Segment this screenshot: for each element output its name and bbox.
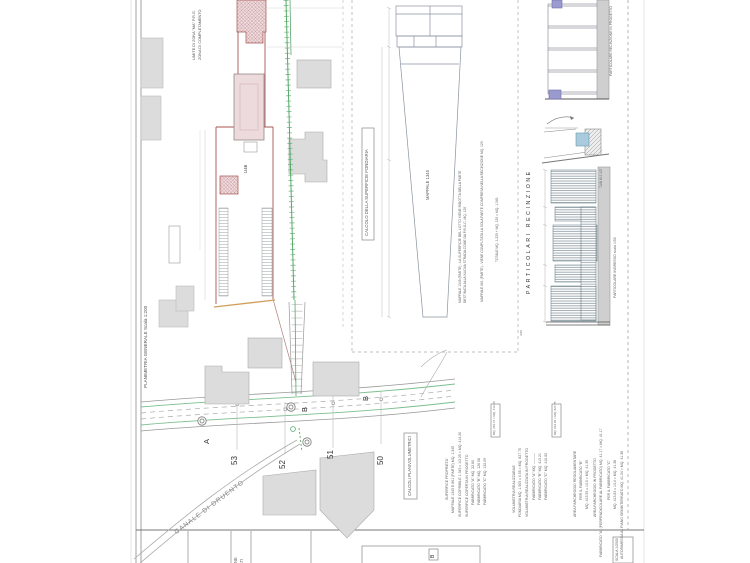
calc-col2-line: FABBRICATO "A" MQ. ———: [533, 453, 537, 500]
site-plan-upper: [200, 0, 343, 382]
surface-calc-note-4: TOTALE MQ. 1.225 + MQ. 120 = MQ. 1.345: [496, 198, 499, 262]
calc-col1-line: MAPPALE 1345 E 861 (PARTE) MQ. 1.345: [452, 446, 456, 513]
calc-col1-line: SUPERFICE COPRIBILE 1.345 x 1/3.25 = MQ.…: [459, 432, 463, 517]
zone-limit-label-1: LIMITE DI ZONA "MA" P.R.G.: [193, 10, 197, 60]
entrance-dim-note: 4.00: [520, 330, 523, 336]
footer-location-label-2: FABBRICATI: [240, 559, 244, 563]
calc-block-title: CALCOLI PLANIVOLUMETRICI: [408, 436, 412, 496]
surface-calc-note-2: DESTINATA ALLA NUOVA STRADA COME DA P.R.…: [464, 207, 467, 303]
calc-col2-line: FABBRICATO "B" MQ. 413.21: [539, 453, 543, 500]
calc-col3-line: MQ. 413.55 x 1/10 = MQ. 41.35: [586, 460, 590, 509]
parcel-wedge: [421, 350, 447, 397]
calc-col1-line: SUPERFICE PROPRIETA': [446, 458, 450, 500]
calc-col1-line: SUPERFICE COPERTA IN PROGETTO: [466, 455, 470, 517]
neighbour-buildings-left: [141, 38, 194, 327]
surface-calc-note-1: MAPPALE 1345 (PARTE) - LA SUPERFICIE DEL…: [459, 171, 462, 303]
calc-col3-line: FABBRICATO "A" (PERPENDICOLARE AL FABBRI…: [600, 428, 604, 557]
calc-col3-line: PER IL FABBRICATO "B": [580, 460, 584, 500]
calc-col2-line: FONDIARIA MQ. 1.505 x 0.55 = MQ. 827.75: [519, 448, 523, 517]
calc-col1-line: FABBRICATO "C" MQ. 132.09: [484, 458, 488, 505]
parcel-51-label: 51: [327, 450, 335, 459]
point-b2-label: B: [362, 396, 370, 401]
neighbour-buildings-road: [205, 338, 374, 538]
parcel-52-label: 52: [279, 460, 287, 469]
calc-box1-total: MQ. 281.47 < MQ. 414.20: [493, 401, 496, 435]
pipe-note: TUBI Ø 2 1/2": [600, 168, 603, 188]
footer-scale-box-label: SCALA 1/2500: [616, 538, 620, 561]
entrance-label: PARTICOLARE INGRESSO scala 1/50: [614, 237, 618, 298]
surface-calc-note-3: MAPPALE 861 (PARTE) - VIENE COMPUTATA LA…: [481, 141, 484, 302]
parcel-53-label: 53: [231, 456, 239, 465]
calc-col3-line: MQ. 413.83 x 1/10 = MQ. 41.38: [614, 460, 618, 509]
drawing-sheet: PLANIMETRIA GENERALE Scala 1:200 LIMITE …: [0, 0, 750, 563]
calc-col2-line: VOLUMETRIA REALIZZATA IN PROGETTO: [526, 448, 530, 517]
entrance-elevation: [543, 167, 610, 325]
sheet-strip-label: PLANIMETRIA GENERALE Scala 1:200: [144, 306, 149, 388]
surface-calc-figure: [362, 6, 462, 318]
calc-col3-line: AREA PARCHEGGIO IN PROGETTO: [594, 458, 598, 517]
parcel-50-label: 50: [377, 456, 385, 465]
calc-b-mark: B: [431, 555, 436, 558]
calc-col3-line: PER IL FABBRICATO "C": [608, 460, 612, 500]
footer-boxes: [188, 531, 633, 563]
fence-top-elevation: [545, 0, 609, 99]
calc-col2-line: VOLUMETRIA REALIZZABILE: [513, 465, 517, 513]
fence-top-label: PARTICOLARE RECINZIONE IN PROGETTO: [610, 6, 613, 76]
footer-location-label-1: UBICAZIONE: [234, 557, 238, 563]
calc-col3-line: AREA PARCHEGGIO REGOLAMENTARE: [574, 451, 578, 517]
point-a-label: A: [203, 439, 211, 444]
gate-plan-detail: [542, 116, 609, 163]
calc-col1-line: FABBRICATO "A" MQ. 22.80: [472, 460, 476, 505]
calc-col2-line: FABBRICATO "C" MQ. 410.82: [545, 453, 549, 500]
building-u46-label: U46: [244, 165, 249, 173]
surface-calc-mappale: MAPPALE 1345: [426, 170, 430, 200]
zone-limit-label-2: ZONA DI COMPLETAMENTO: [199, 10, 203, 61]
drawing-linework: [0, 0, 750, 563]
calc-col3-line: AUTORIMESSA AL PIANO SEMINTERRATO MQ. 41…: [621, 451, 625, 559]
calc-box2-total: MQ. 824.03 < MQ. 827.75: [554, 401, 557, 435]
calc-col1-line: FABBRICATO "B" MQ. 126.58: [478, 458, 482, 505]
fence-section-title: PARTICOLARI RECINZIONE: [527, 169, 532, 294]
point-b1-label: B: [301, 407, 309, 412]
surface-calc-title: CALCOLO DELLA SUPERFICIE FONDIARIA: [365, 149, 369, 236]
driveway: [289, 300, 305, 396]
